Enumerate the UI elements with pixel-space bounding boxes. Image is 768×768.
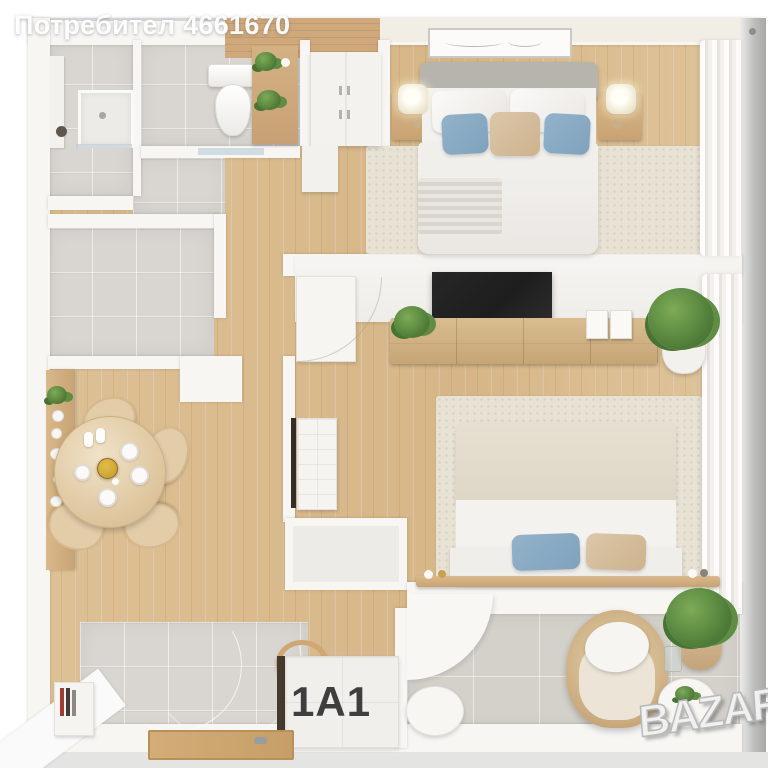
shelf-jar [281, 58, 290, 67]
bed2-duvet [456, 422, 676, 504]
wall-wc-right [300, 40, 310, 146]
ledge-decor [424, 570, 433, 579]
ledge-decor [700, 569, 708, 577]
picture-frame [610, 310, 632, 339]
console-plant [394, 306, 430, 338]
tv-screen [432, 272, 552, 321]
hall-cabinet [302, 146, 338, 192]
living-large-plant [648, 288, 714, 350]
place-setting [130, 466, 149, 485]
picture-frame [586, 310, 608, 339]
balcony-large-plant [666, 588, 732, 648]
book-spine [60, 688, 64, 716]
table-candle [96, 428, 105, 443]
bed1-pillow-beige [490, 112, 540, 156]
gold-teapot [97, 458, 118, 479]
unit-block: 1A1 [285, 656, 399, 748]
bed2-pillow-blue [511, 533, 580, 571]
entrance-door-handle [254, 737, 267, 744]
wardrobe-handle [347, 86, 350, 95]
bed2-pillow-beige [585, 533, 646, 571]
wardrobe-handle [339, 110, 342, 119]
unit-number-label: 1A1 [286, 657, 398, 747]
ledge-clock [438, 570, 446, 578]
rack-side-panel [291, 418, 296, 508]
sideboard-plant [47, 386, 67, 404]
bedside-lamp-right [606, 84, 636, 114]
balcony-low-table [406, 686, 464, 736]
wall-shower-bottom [48, 196, 133, 210]
bed1-pillow-blue-right [543, 113, 591, 155]
corridor-end-face [293, 526, 399, 582]
place-setting [74, 464, 91, 481]
art-sketch [508, 36, 542, 47]
ground-strip [0, 752, 768, 768]
wall-shower-wc [133, 40, 141, 196]
bathroom-floor [48, 228, 214, 356]
glass-vase [664, 646, 682, 672]
nightstand-decor [414, 120, 422, 128]
entrance-door [148, 730, 294, 760]
bed1-pillow-blue-left [441, 113, 489, 155]
wall-bathroom-top [48, 214, 218, 228]
shower-drain [99, 112, 106, 119]
place-setting [98, 488, 117, 507]
vestibule-floor [133, 158, 225, 214]
table-candle [84, 432, 93, 447]
shower-tray [78, 90, 134, 148]
wall-bathroom-right [214, 214, 226, 318]
shower-glass-screen [76, 144, 132, 148]
outer-wall-right [740, 18, 766, 756]
shelf-plant-lower [257, 90, 281, 110]
nightstand-decor [612, 120, 621, 129]
wall-dining-stub [180, 356, 242, 402]
bath-kettle [56, 126, 67, 137]
wall-screw [749, 28, 756, 35]
bedroom1-curtains [700, 40, 742, 256]
wardrobe [310, 52, 381, 146]
sideboard-vase [51, 428, 62, 439]
wall-bathroom-bottom [48, 356, 182, 369]
wardrobe-handle [339, 86, 342, 95]
sideboard-vase [52, 410, 64, 422]
user-watermark: Потребител 4661670 [14, 10, 290, 41]
book-spine [72, 690, 76, 716]
quilted-shoe-rack [297, 418, 337, 510]
bedside-lamp-left [398, 84, 428, 114]
place-setting [120, 442, 139, 461]
ledge-decor [688, 569, 697, 578]
art-sketch [446, 38, 502, 47]
floor-plan-image: 1A1 Потребител 4661670 BAZAR [0, 0, 768, 768]
book-spine [66, 688, 70, 716]
shelf-plant-upper [255, 52, 277, 71]
bed1-striped-throw [418, 178, 502, 234]
wc-glass-door [198, 148, 264, 155]
bedroom2-ledge [416, 576, 720, 587]
table-cup [112, 478, 119, 485]
wardrobe-handle [347, 110, 350, 119]
